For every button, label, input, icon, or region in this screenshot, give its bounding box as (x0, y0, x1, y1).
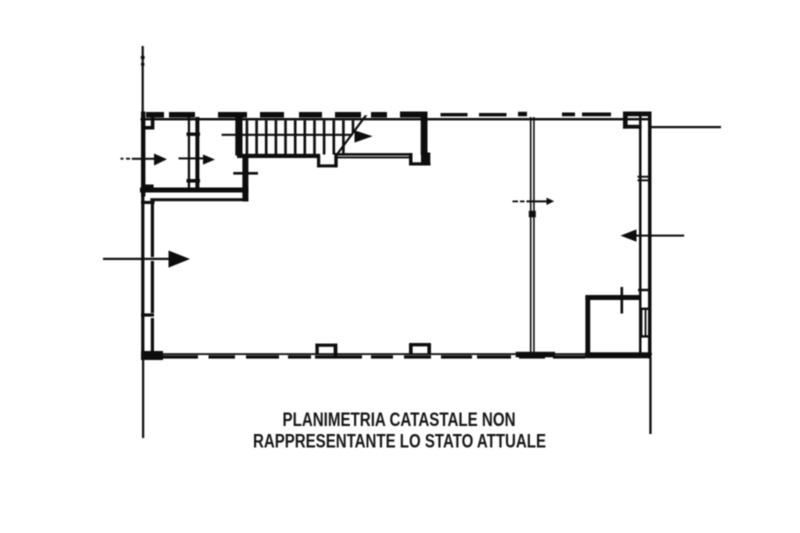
svg-text:RAPPRESENTANTE LO STATO ATTUAL: RAPPRESENTANTE LO STATO ATTUALE (253, 432, 546, 453)
svg-text:PLANIMETRIA CATASTALE NON: PLANIMETRIA CATASTALE NON (283, 410, 516, 431)
